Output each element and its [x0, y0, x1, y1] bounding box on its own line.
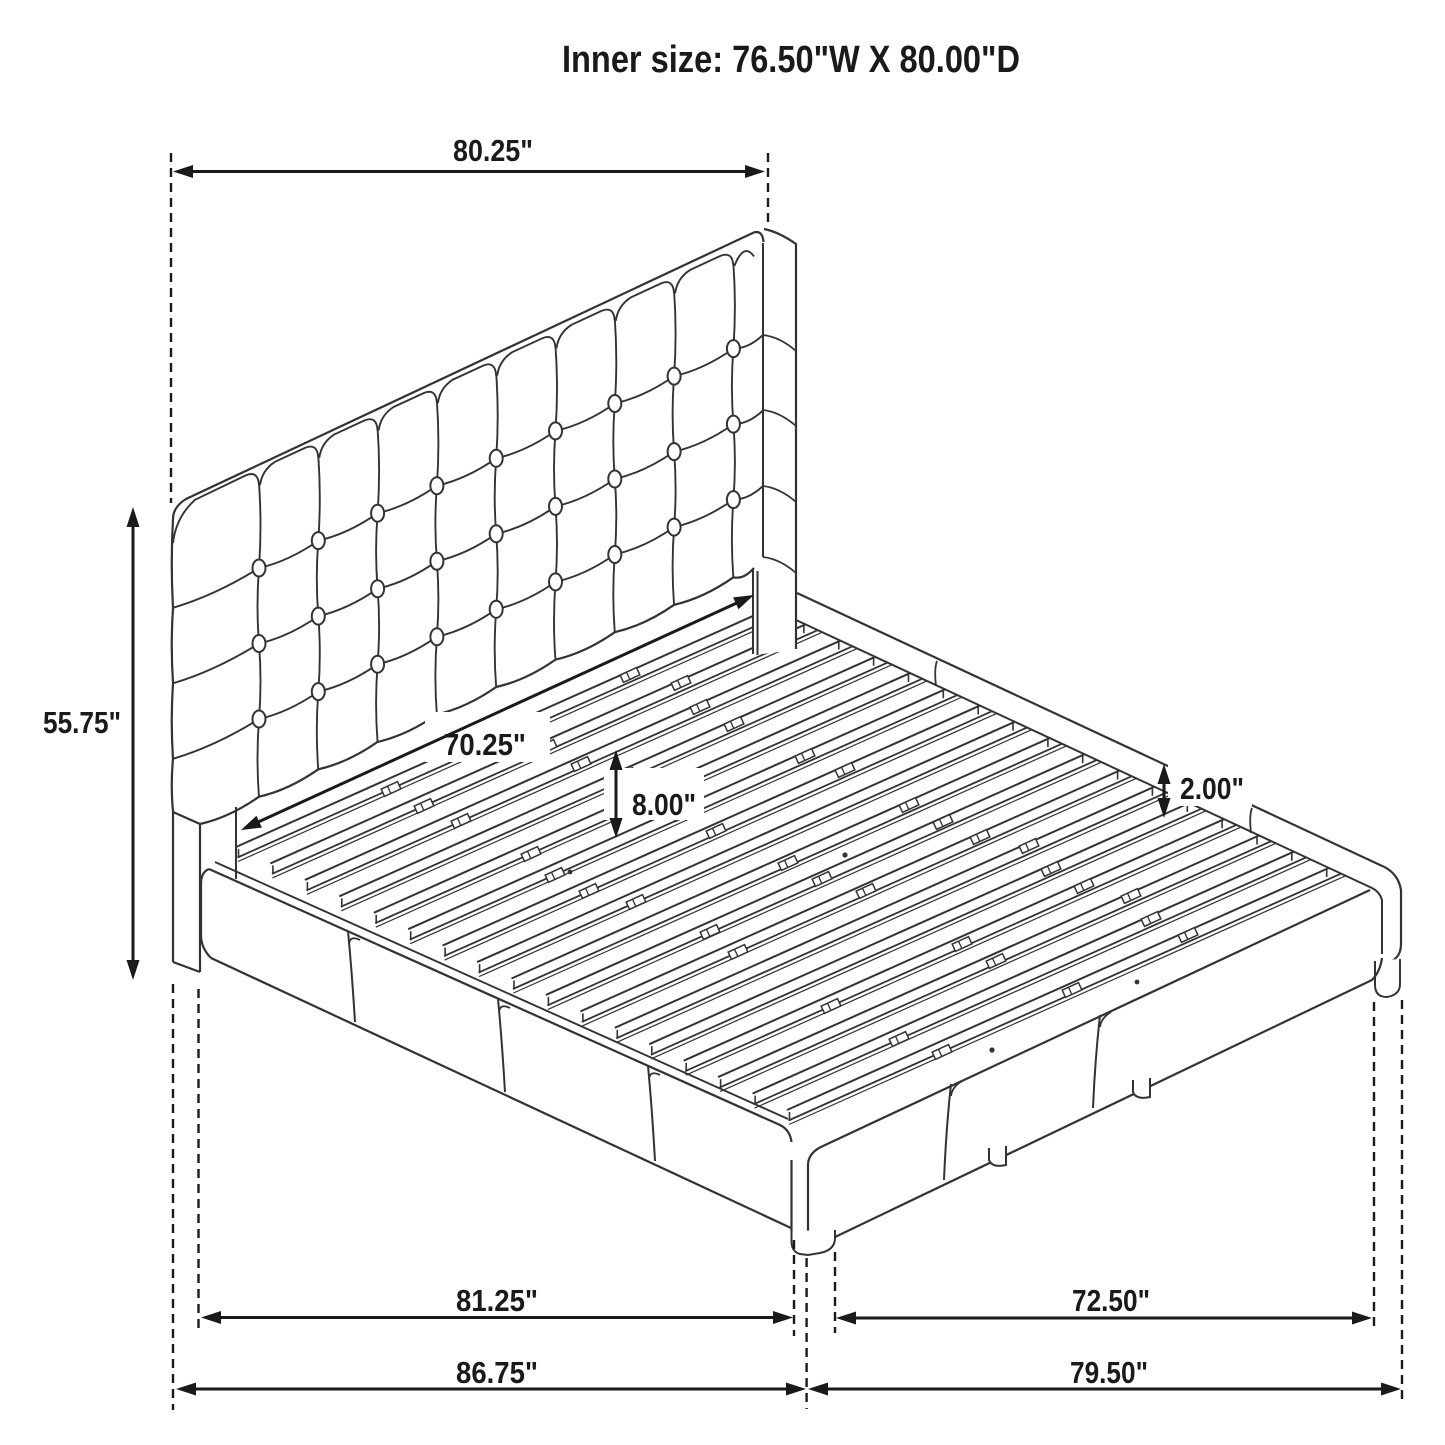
svg-text:81.25": 81.25" — [456, 1283, 538, 1318]
svg-text:79.50": 79.50" — [1070, 1355, 1148, 1390]
svg-text:86.75": 86.75" — [456, 1355, 538, 1390]
svg-text:72.50": 72.50" — [1072, 1283, 1150, 1318]
svg-text:55.75": 55.75" — [43, 705, 121, 740]
svg-text:8.00": 8.00" — [632, 787, 696, 822]
svg-text:Inner size: 76.50"W X 80.00"D: Inner size: 76.50"W X 80.00"D — [562, 39, 1020, 81]
svg-text:70.25": 70.25" — [444, 727, 526, 762]
svg-text:80.25": 80.25" — [453, 133, 533, 168]
svg-text:2.00": 2.00" — [1180, 771, 1244, 806]
